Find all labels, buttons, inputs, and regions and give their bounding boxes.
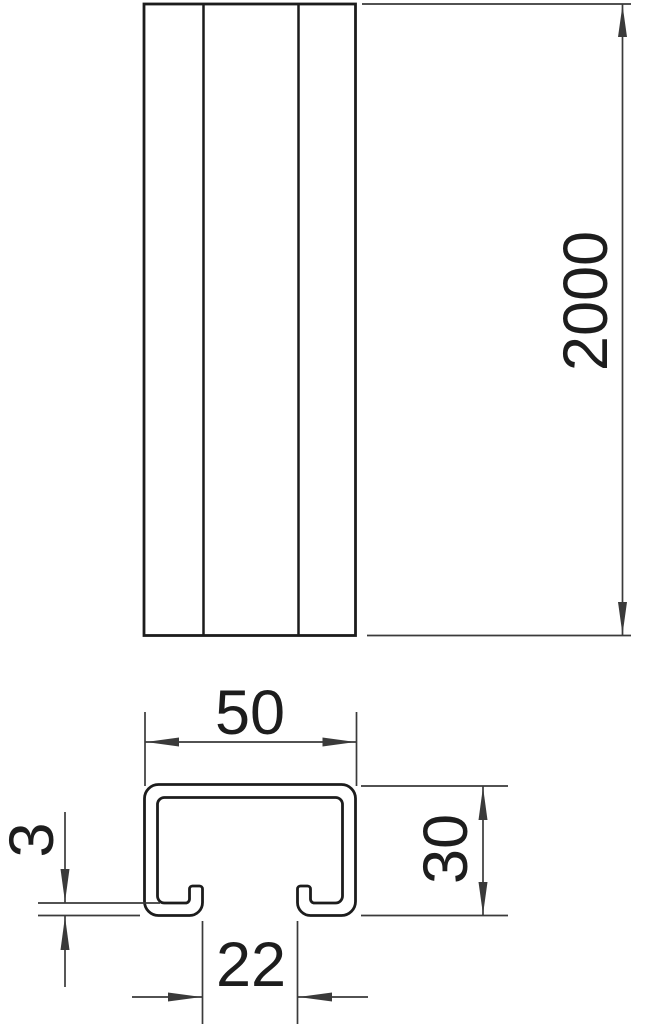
- dimension-thickness: 3: [0, 812, 160, 987]
- dimension-length: 2000: [362, 4, 631, 636]
- arrow-left-icon: [146, 738, 179, 747]
- width-dimension-label: 50: [215, 678, 285, 748]
- arrow-down-icon: [61, 869, 70, 902]
- rail-outline: [144, 4, 356, 636]
- arrow-left-icon: [299, 993, 333, 1002]
- arrow-up-icon: [61, 917, 70, 951]
- dimension-height: 30: [361, 786, 508, 916]
- arrow-up-icon: [618, 5, 627, 37]
- dimension-slot-opening: 22: [132, 921, 368, 1024]
- dimension-width: 50: [145, 678, 357, 786]
- arrow-down-icon: [618, 602, 627, 635]
- arrow-right-icon: [168, 993, 202, 1002]
- arrow-down-icon: [479, 882, 488, 915]
- profile-cross-section: [145, 785, 356, 916]
- thickness-dimension-label: 3: [0, 822, 67, 857]
- height-dimension-label: 30: [411, 814, 481, 884]
- profile-outline: [145, 785, 356, 916]
- technical-drawing: 2000 50 30 22 3: [0, 0, 646, 1024]
- rail-side-view: [144, 4, 356, 636]
- slot-dimension-label: 22: [216, 930, 286, 1000]
- length-dimension-label: 2000: [551, 231, 621, 371]
- arrow-right-icon: [323, 738, 356, 747]
